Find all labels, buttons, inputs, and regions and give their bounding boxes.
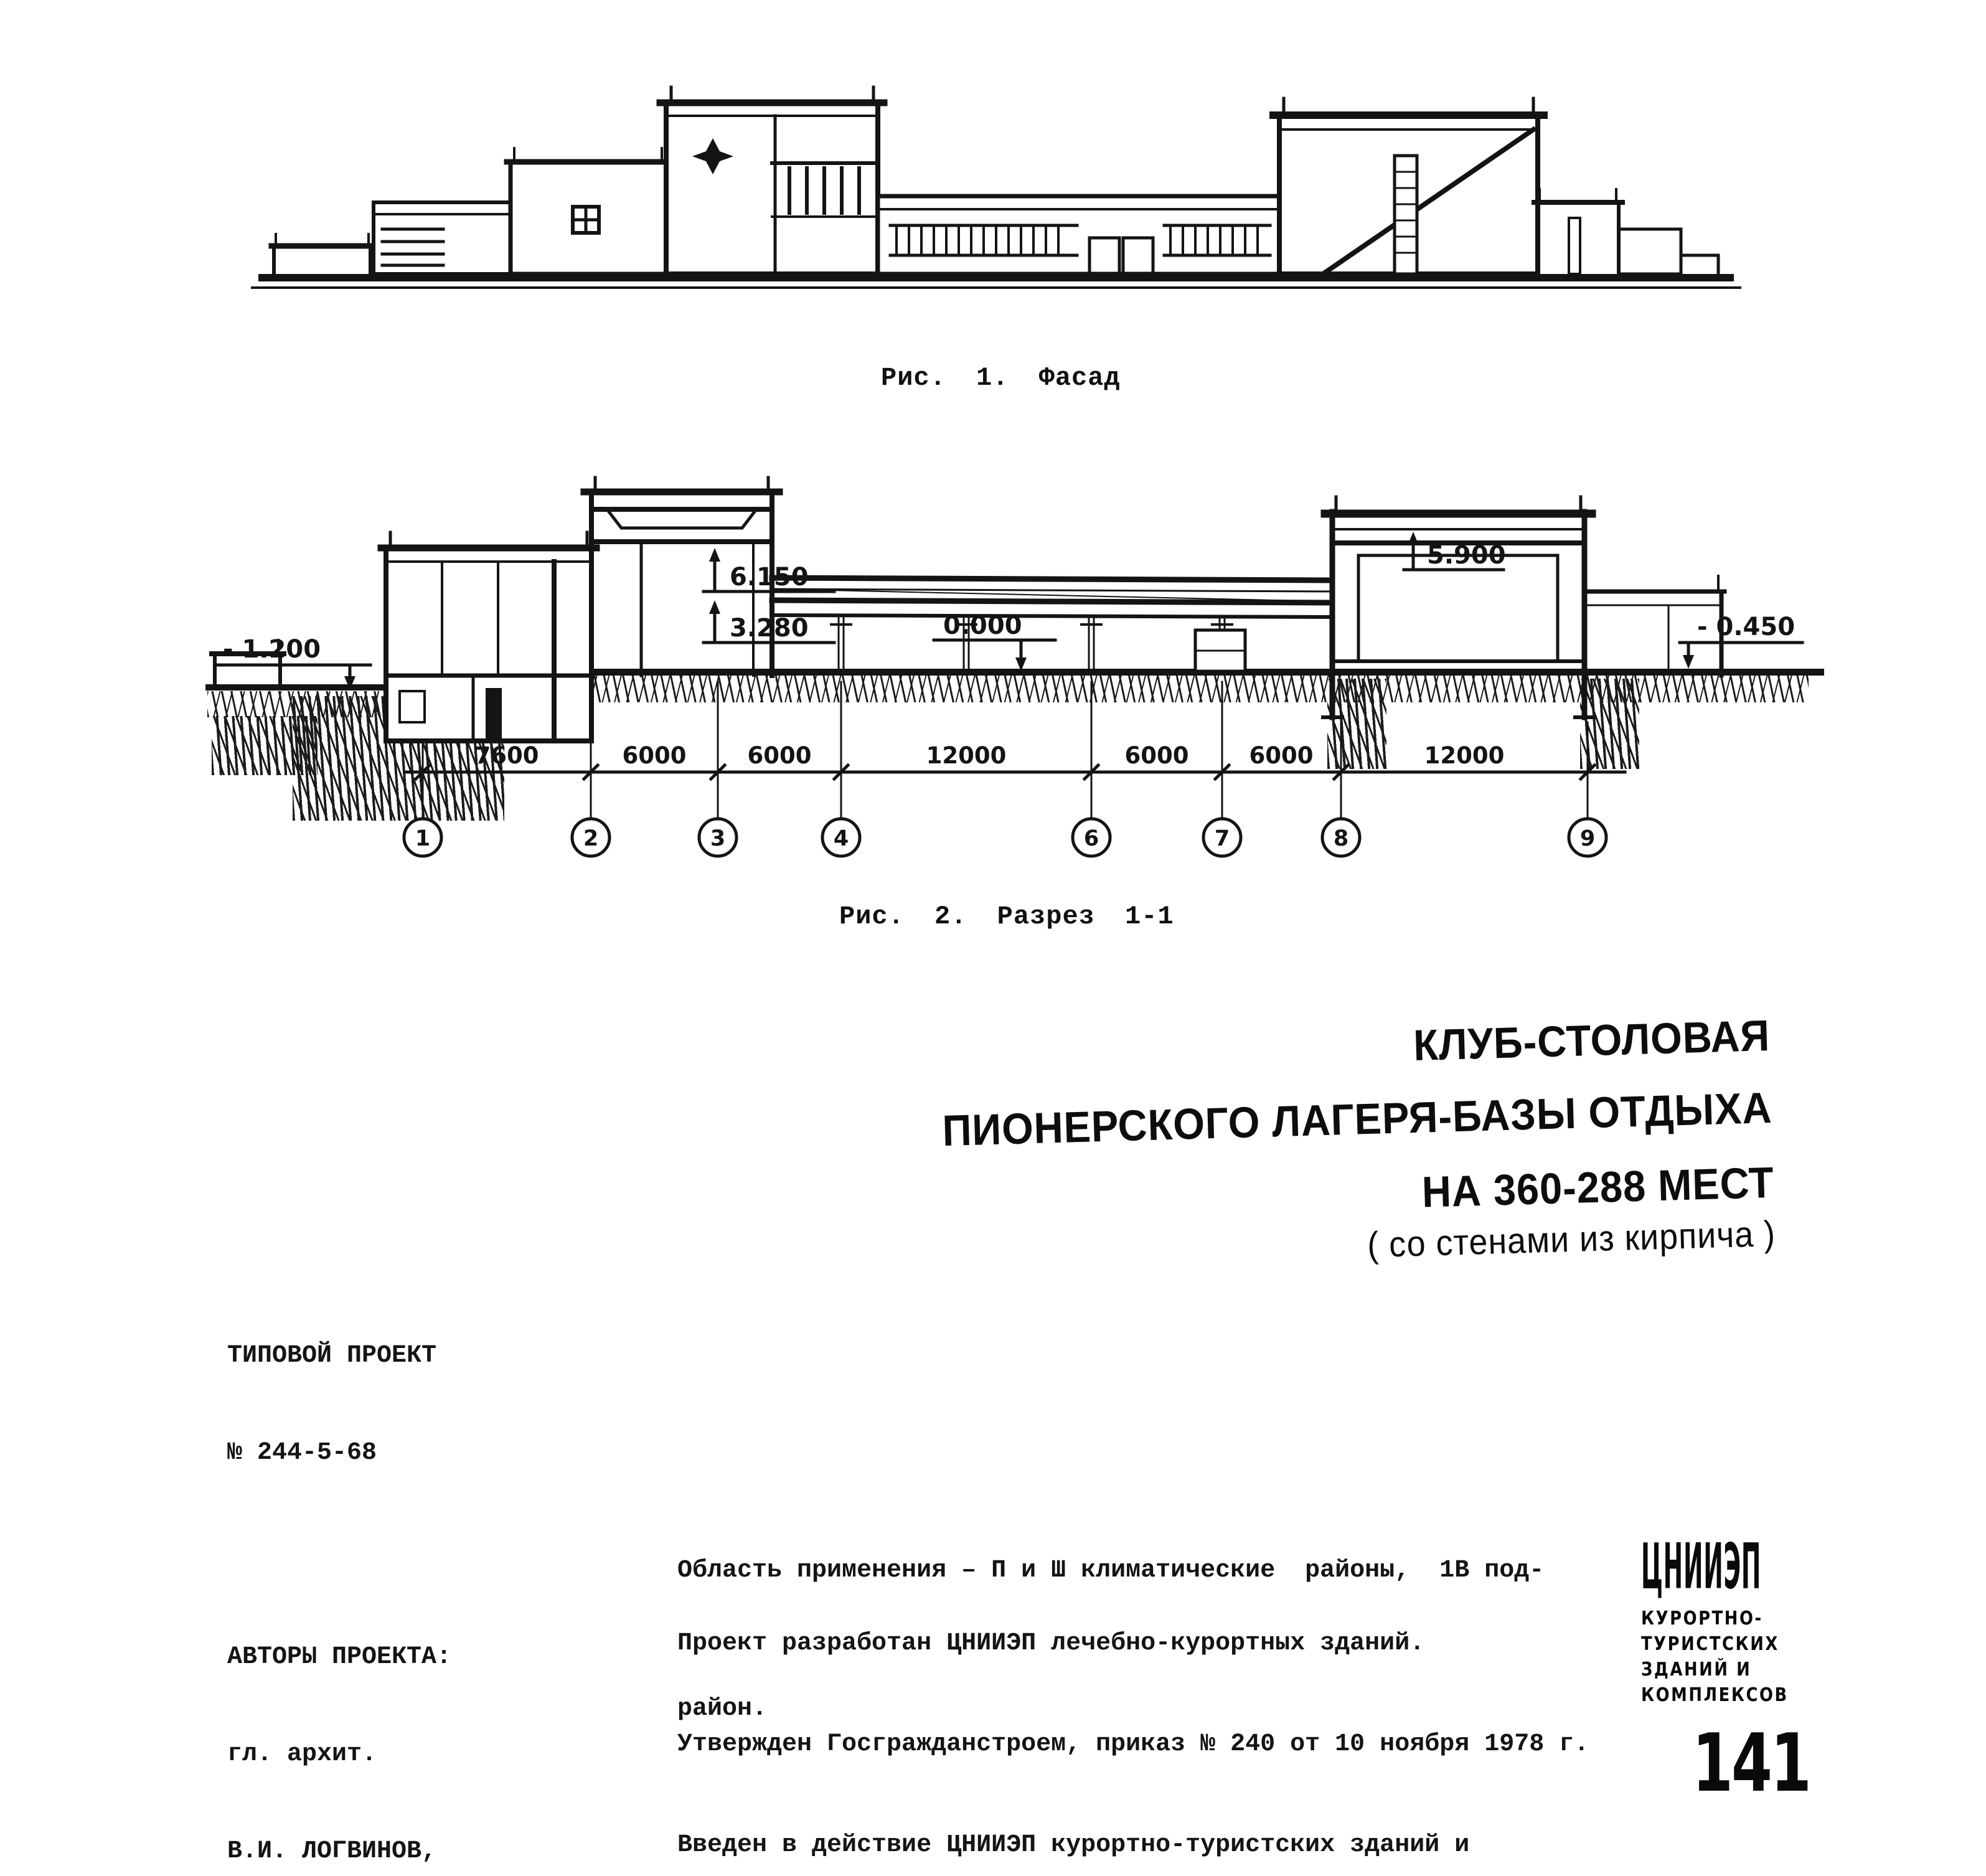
- page-number: 141: [1692, 1717, 1810, 1810]
- dim-value: 12000: [926, 742, 1007, 769]
- facade-geometry: [252, 87, 1740, 288]
- figure2-caption: Рис. 2. Разрез 1-1: [839, 902, 1174, 931]
- spacer: [227, 1534, 571, 1577]
- approval-paragraph: Проект разработан ЦНИИЭП лечебно-курортн…: [677, 1560, 1589, 1876]
- axis-number: 6: [1084, 826, 1099, 851]
- axis-number: 2: [583, 826, 598, 851]
- dim-value: 6000: [1125, 742, 1189, 769]
- axis-number: 3: [710, 826, 725, 851]
- tsniiep-logo: ЦНИИЭП КУРОРТНО- ТУРИСТСКИХ ЗДАНИЙ И КОМ…: [1641, 1530, 1812, 1708]
- project-number: № 244-5-68: [227, 1437, 571, 1469]
- hall-columns: [831, 617, 1232, 671]
- axis-number: 9: [1580, 826, 1595, 851]
- logo-subline: ЗДАНИЙ И: [1641, 1657, 1789, 1682]
- figure1-caption: Рис. 1. Фасад: [881, 363, 1121, 393]
- section-drawing: 6.150 3.280 0.000 5.900 - 1.200 - 0.450 …: [205, 473, 1837, 884]
- axis-numbers: 1 2 3 4 6 7 8 9: [415, 826, 1595, 851]
- project-title-block: КЛУБ-СТОЛОВАЯ ПИОНЕРСКОГО ЛАГЕРЯ-БАЗЫ ОТ…: [612, 1014, 1776, 1287]
- catalog-page: Рис. 1. Фасад: [0, 0, 1986, 1876]
- dim-value: 6000: [748, 742, 812, 769]
- project-title-line2: ПИОНЕРСКОГО ЛАГЕРЯ-БАЗЫ ОТДЫХА: [614, 1086, 1772, 1162]
- tsniiep-logo-wordmark: ЦНИИЭП: [1641, 1530, 1778, 1604]
- author-line: гл. архит.: [227, 1738, 571, 1771]
- dim-value: 12000: [1424, 742, 1505, 769]
- axis-number: 8: [1334, 826, 1348, 851]
- author-line: В.И. ЛОГВИНОВ,: [227, 1836, 571, 1868]
- axis-number: 4: [834, 826, 849, 851]
- project-info-column: ТИПОВОЙ ПРОЕКТ № 244-5-68 АВТОРЫ ПРОЕКТА…: [227, 1275, 571, 1876]
- elevation-left-ground: - 1.200: [223, 635, 321, 664]
- dim-value: 6000: [1249, 742, 1314, 769]
- axis-number: 7: [1215, 826, 1230, 851]
- approval-line: Введен в действие ЦНИИЭП курортно-турист…: [677, 1829, 1589, 1862]
- elevation-floor: 0.000: [943, 611, 1022, 640]
- section-geometry: [205, 478, 1824, 856]
- elevation-tower-top: 6.150: [730, 563, 809, 592]
- elevation-hall-top: 5.900: [1427, 541, 1506, 570]
- approval-line: Утвержден Госгражданстроем, приказ № 240…: [677, 1728, 1589, 1761]
- authors-heading: АВТОРЫ ПРОЕКТА:: [227, 1641, 571, 1674]
- logo-subline: КУРОРТНО-: [1641, 1606, 1789, 1631]
- approval-line: Проект разработан ЦНИИЭП лечебно-курортн…: [677, 1627, 1589, 1661]
- elevation-right-ground: - 0.450: [1697, 613, 1795, 641]
- axis-number: 1: [415, 826, 430, 851]
- project-title-line1: КЛУБ-СТОЛОВАЯ: [612, 1014, 1771, 1090]
- logo-subline: КОМПЛЕКСОВ: [1641, 1682, 1789, 1708]
- dim-value: 6000: [623, 742, 687, 769]
- dimension-values: 7600 6000 6000 12000 6000 6000 12000: [475, 742, 1505, 769]
- project-type-label: ТИПОВОЙ ПРОЕКТ: [227, 1340, 571, 1372]
- facade-drawing: [249, 68, 1743, 318]
- tsniiep-logo-sublines: КУРОРТНО- ТУРИСТСКИХ ЗДАНИЙ И КОМПЛЕКСОВ: [1641, 1606, 1789, 1708]
- elevation-tower-mid: 3.280: [730, 614, 809, 643]
- logo-subline: ТУРИСТСКИХ: [1641, 1631, 1789, 1657]
- dim-value: 7600: [475, 742, 539, 769]
